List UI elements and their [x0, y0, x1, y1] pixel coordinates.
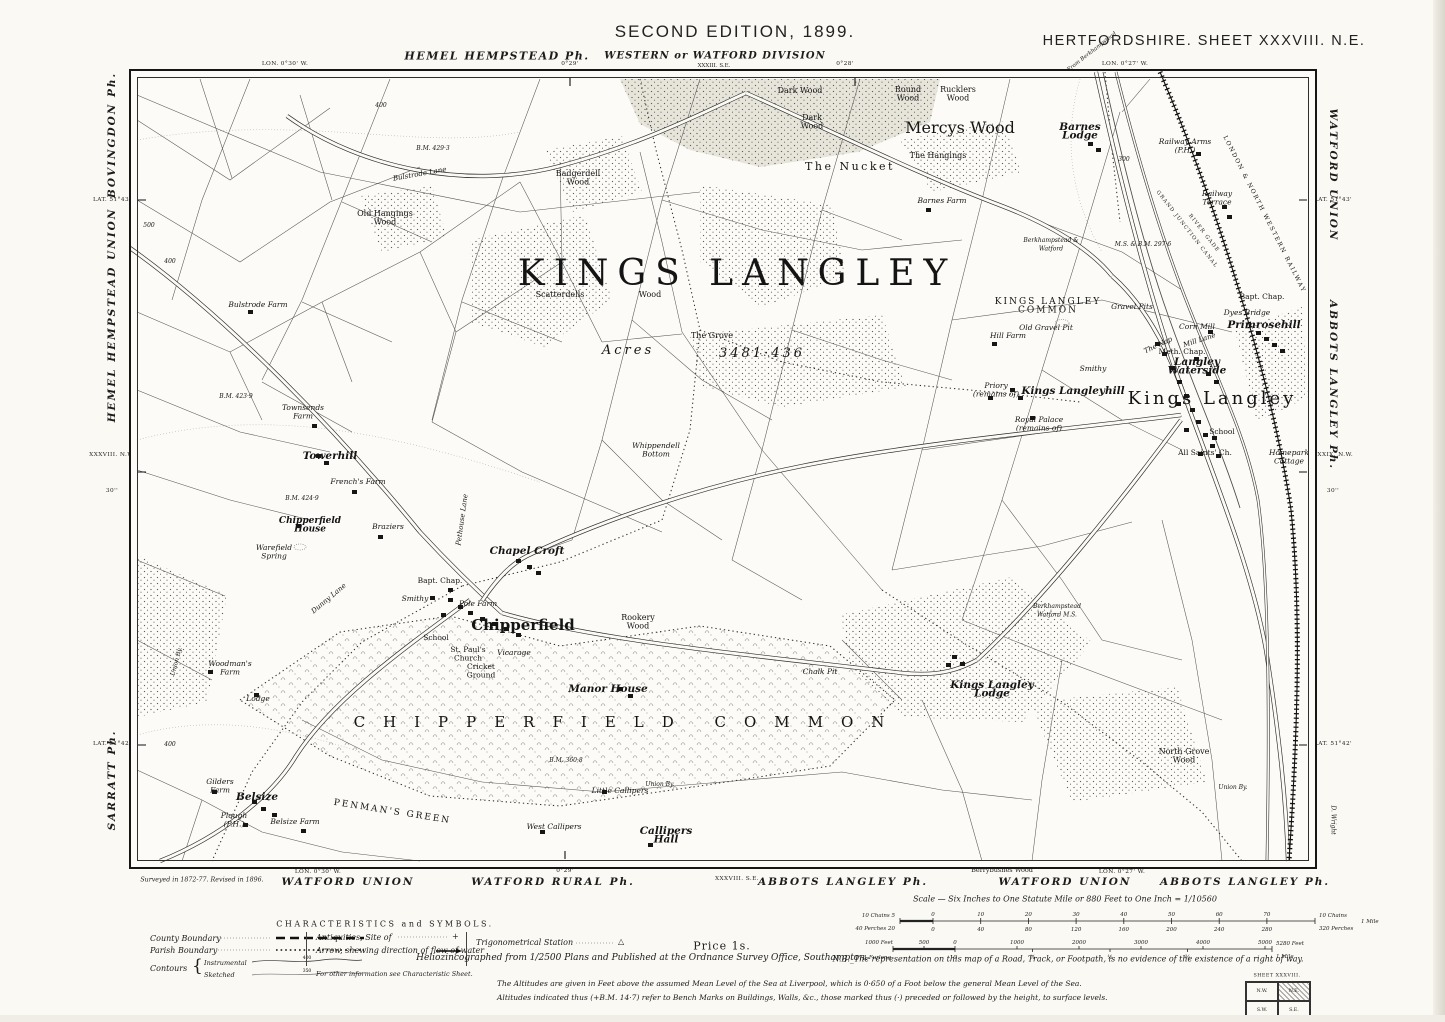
map-label: 3481·436: [719, 346, 805, 361]
map-canvas: KINGS LANGLEYAcres3481·436ScatterdellsWo…: [130, 70, 1316, 868]
building: [946, 663, 951, 667]
map-label: Chapel Croft: [490, 545, 565, 557]
building: [1177, 380, 1182, 384]
margin-label: LAT. 51°42': [1314, 741, 1352, 747]
margin-label: XXXVIII. S.E.: [715, 876, 759, 882]
scale-text: 50: [1168, 912, 1175, 918]
map-label: Smithy: [402, 594, 429, 603]
antiquities-leader: [398, 933, 450, 941]
map-label: Mercys Wood: [905, 118, 1015, 137]
map-label: RoundWood: [895, 85, 921, 103]
map-label: 400: [374, 102, 387, 109]
map-label: Smithy: [1080, 364, 1107, 373]
longitude-mark: 0°28': [836, 61, 854, 67]
building: [430, 596, 435, 600]
division-label: WESTERN or WATFORD DIVISION: [604, 51, 826, 62]
margin-label: WATFORD UNION: [281, 876, 414, 888]
map-label: Towerhill: [303, 450, 357, 462]
map-label: Primrosehill: [1226, 319, 1300, 331]
building: [992, 342, 997, 346]
margin-label: 0°29': [556, 868, 574, 874]
map-label: KINGS LANGLEY: [518, 253, 957, 294]
map-label: Union By.: [1218, 784, 1247, 791]
scale-text: 40: [976, 927, 984, 933]
margin-label: WATFORD UNION: [998, 876, 1131, 888]
map-label: Bapt. Chap.: [1240, 292, 1285, 301]
margin-label: ABBOTS LANGLEY Ph.: [1327, 300, 1339, 470]
scale-statement: Scale — Six Inches to One Statute Mile o…: [913, 895, 1217, 904]
map-label: Dark Wood: [778, 86, 823, 95]
building: [1203, 433, 1208, 437]
map-label: LangleyWaterside: [1168, 356, 1227, 377]
scan-edge: [0, 1015, 1445, 1022]
scale-text: 160: [1119, 927, 1130, 933]
sheet-index-cell: N.W.: [1246, 982, 1278, 1001]
map-label: Union By.: [645, 781, 674, 788]
margin-label: SARRATT Ph.: [106, 730, 118, 831]
map-label: Old Gravel Pit: [1019, 323, 1074, 332]
map-label: Chalk Pit: [803, 667, 839, 676]
building: [352, 490, 357, 494]
margin-label: ABBOTS LANGLEY Ph.: [1160, 876, 1330, 888]
building: [1272, 343, 1277, 347]
scale-text: 240: [1213, 927, 1225, 933]
map-label: Gravel Pits: [1111, 302, 1153, 311]
scale-text: 500: [919, 940, 930, 946]
scale-text: 5000: [1258, 940, 1272, 946]
sheet-title: HERTFORDSHIRE. SHEET XXXVIII. N.E.: [1043, 33, 1366, 49]
map-label: RailwayTerrace: [1201, 189, 1233, 207]
trig-leader: [576, 939, 616, 947]
scale-text: 80: [1025, 927, 1032, 933]
map-label: CricketGround: [467, 662, 496, 680]
trig-symbol: △: [618, 937, 624, 946]
margin-label: 30'': [106, 488, 118, 494]
svg-text:400: 400: [303, 955, 312, 961]
building: [261, 807, 266, 811]
map-label: Barnes Farm: [917, 196, 967, 205]
scale-text: 30: [1073, 912, 1080, 918]
map-label: Acres: [601, 343, 654, 358]
building: [527, 565, 532, 569]
map-label: B.M. 424·9: [284, 495, 319, 502]
scale-text: 3000: [1134, 940, 1148, 946]
map-label: BerkhampsteadWatford M.S.: [1032, 603, 1081, 619]
map-label: Lodge: [245, 694, 270, 703]
map-label: BarnesLodge: [1058, 121, 1101, 142]
scale-text: 200: [1165, 927, 1177, 933]
margin-label: LAT. 51°43': [1314, 197, 1352, 203]
building: [301, 829, 306, 833]
building: [1214, 380, 1219, 384]
map-label: CHIPPERFIELD COMMON: [354, 713, 903, 731]
altitude-note-2: Altitudes indicated thus (+B.M. 14·7) re…: [497, 993, 1108, 1002]
margin-label: D. Wright: [1330, 805, 1337, 834]
map-label: Kings Langley: [1128, 388, 1297, 409]
scale-text: 280: [1261, 927, 1273, 933]
map-label: Bulstrode Farm: [227, 300, 287, 309]
map-label: St. Paul'sChurch: [450, 645, 485, 663]
building: [1212, 436, 1217, 440]
building: [248, 310, 253, 314]
legend-contours-sketched: Sketched: [204, 971, 235, 979]
legend-county-boundary: County Boundary: [150, 934, 221, 943]
legend-title: CHARACTERISTICS and SYMBOLS.: [276, 920, 493, 929]
map-label: Braziers: [371, 522, 404, 531]
building: [1280, 349, 1285, 353]
map-label: Bapt. Chap.: [418, 576, 463, 585]
map-label: The Hangings: [910, 151, 967, 160]
scale-text: 0: [931, 912, 935, 918]
scale-text: 1 Mile: [1361, 919, 1379, 925]
scale-text: 70: [1263, 912, 1270, 918]
map-label: Hill Farm: [989, 331, 1026, 340]
map-label: DarkWood: [801, 113, 823, 131]
antiquities-symbol: +: [452, 932, 459, 941]
map-label: 400: [163, 741, 176, 748]
legend-divider: [306, 932, 307, 966]
scale-text: 10 Chains: [1319, 913, 1347, 919]
building: [648, 843, 653, 847]
building: [926, 208, 931, 212]
map-label: Little Callipers: [591, 786, 649, 795]
scale-text: 40 Perches 20: [854, 926, 895, 932]
building: [960, 662, 965, 666]
sheet-index-title: SHEET XXXVIII.: [1253, 974, 1300, 979]
building: [516, 559, 521, 563]
building: [1096, 148, 1101, 152]
margin-label: ABBOTS LANGLEY Ph.: [758, 876, 928, 888]
svg-text:350: 350: [303, 968, 312, 974]
building: [468, 611, 473, 615]
building: [1227, 215, 1232, 219]
legend-contours-instrumental: Instrumental: [204, 959, 247, 967]
map-label: Scatterdells: [536, 290, 585, 299]
scale-text: 60: [1216, 912, 1223, 918]
scale-text: 10 Chains 5: [862, 913, 896, 919]
map-label: 300: [1118, 156, 1130, 163]
imprint-nb-note: N.B._The representation on this map of a…: [832, 955, 1303, 964]
margin-label: LAT. 51°43': [93, 197, 131, 203]
scale-text: 0: [953, 940, 957, 946]
scale-text: 40: [1119, 912, 1127, 918]
building: [208, 670, 213, 674]
map-label: B.M. 423·9: [218, 393, 253, 400]
scale-text: 2000: [1071, 940, 1086, 946]
scan-edge: [1433, 0, 1445, 1022]
scale-text: 20: [1024, 912, 1032, 918]
map-label: 500: [143, 222, 155, 229]
map-label: 400: [163, 258, 176, 265]
longitude-mark: LON. 0°27' W.: [1102, 61, 1148, 67]
map-label: GildersFarm: [206, 777, 234, 795]
margin-label: BOVINGDON Ph.: [106, 72, 118, 198]
scale-text: 320 Perches: [1319, 926, 1353, 932]
imprint-heliozincographed: Heliozincographed from 1/2500 Plans and …: [416, 953, 868, 963]
margin-label: WATFORD RURAL Ph.: [471, 876, 635, 888]
legend-contours: Contours: [150, 964, 187, 973]
margin-label: WATFORD UNION: [1327, 108, 1339, 241]
map-label: HomeparkCottage: [1268, 448, 1309, 466]
building: [312, 424, 317, 428]
contour-instrumental-symbol: 400: [252, 954, 364, 966]
map-label: The Nucket: [805, 160, 895, 173]
margin-label: HEMEL HEMPSTEAD UNION: [106, 208, 118, 423]
map-label: Plough(P.H.): [220, 811, 248, 829]
margin-label: Surveyed in 1872-77. Revised in 1896.: [140, 877, 263, 884]
map-label: B.M. 429·3: [415, 145, 450, 152]
margin-label: XXXVIII. N.W.: [89, 452, 135, 458]
map-label: Dyes Bridge: [1223, 308, 1271, 317]
legend-other-info: For other information see Characteristic…: [316, 970, 473, 978]
map-label: Chipperfield: [471, 616, 575, 634]
scale-text: 4000: [1195, 940, 1210, 946]
map-label: Corn Mill: [1179, 322, 1216, 331]
map-label: Wood: [639, 290, 661, 299]
map-label: Belsize Farm: [269, 817, 319, 826]
building: [378, 535, 383, 539]
longitude-mark: 0°29': [561, 61, 579, 67]
building: [448, 598, 453, 602]
building: [448, 588, 453, 592]
margin-label: LON. 0°27' W.: [1099, 869, 1145, 875]
map-label: The Grove: [691, 331, 733, 340]
price-label: Price 1s.: [693, 940, 751, 953]
map-label: School: [1209, 427, 1235, 436]
building: [1196, 420, 1201, 424]
map-label: School: [423, 633, 449, 642]
adjacent-sheet-north: XXXIII. S.E.: [698, 63, 731, 69]
building: [441, 613, 446, 617]
building: [1264, 337, 1269, 341]
building: [952, 655, 957, 659]
margin-label: XXXIX. N.W.: [1313, 452, 1353, 458]
scale-text: 1000: [1010, 940, 1024, 946]
map-label: French's Farm: [329, 477, 385, 486]
legend-parish-boundary: Parish Boundary: [150, 946, 217, 955]
map-label: M.S. & B.M. 297·6: [1114, 241, 1172, 248]
scale-text: 1000 Feet: [865, 940, 894, 946]
building: [1256, 331, 1261, 335]
scale-text: 5280 Feet: [1276, 941, 1305, 947]
margin-label: LON. 0°30' W.: [295, 869, 341, 875]
map-label: West Callipers: [527, 822, 582, 831]
longitude-mark: LON. 0°30' W.: [262, 61, 308, 67]
legend-trig-station: Trigonometrical Station: [476, 938, 573, 947]
scale-text: 0: [931, 927, 935, 933]
map-label: Royal Palace(remains of): [1014, 415, 1064, 433]
map-label: Meth. Chap.: [1159, 347, 1206, 356]
building: [1184, 428, 1189, 432]
brace-glyph: {: [192, 956, 203, 976]
altitude-note-1: The Altitudes are given in Feet above th…: [497, 979, 1082, 988]
map-label: Vicarage: [497, 648, 531, 657]
scale-text: 120: [1071, 927, 1082, 933]
building: [536, 571, 541, 575]
map-label: Kings Langleyhill: [1020, 385, 1124, 397]
edition-title: SECOND EDITION, 1899.: [615, 22, 855, 42]
map-label: Pole Farm: [458, 599, 497, 608]
map-label: B.M. 360·8: [548, 757, 583, 764]
building: [1196, 152, 1201, 156]
scale-text: 10: [977, 912, 984, 918]
scanned-map-page: { "page": { "bg": "#faf9f4", "ink": "#1c…: [0, 0, 1445, 1022]
map-label: All Saints' Ch.: [1177, 448, 1232, 457]
margin-label: 30'': [1327, 488, 1339, 494]
map-label: Belsize: [235, 791, 278, 803]
building: [1088, 142, 1093, 146]
sheet-index-cell: N.E.: [1278, 982, 1310, 1001]
legend-antiquities: Antiquities, Site of: [316, 933, 392, 942]
map-label: Manor House: [567, 683, 648, 695]
